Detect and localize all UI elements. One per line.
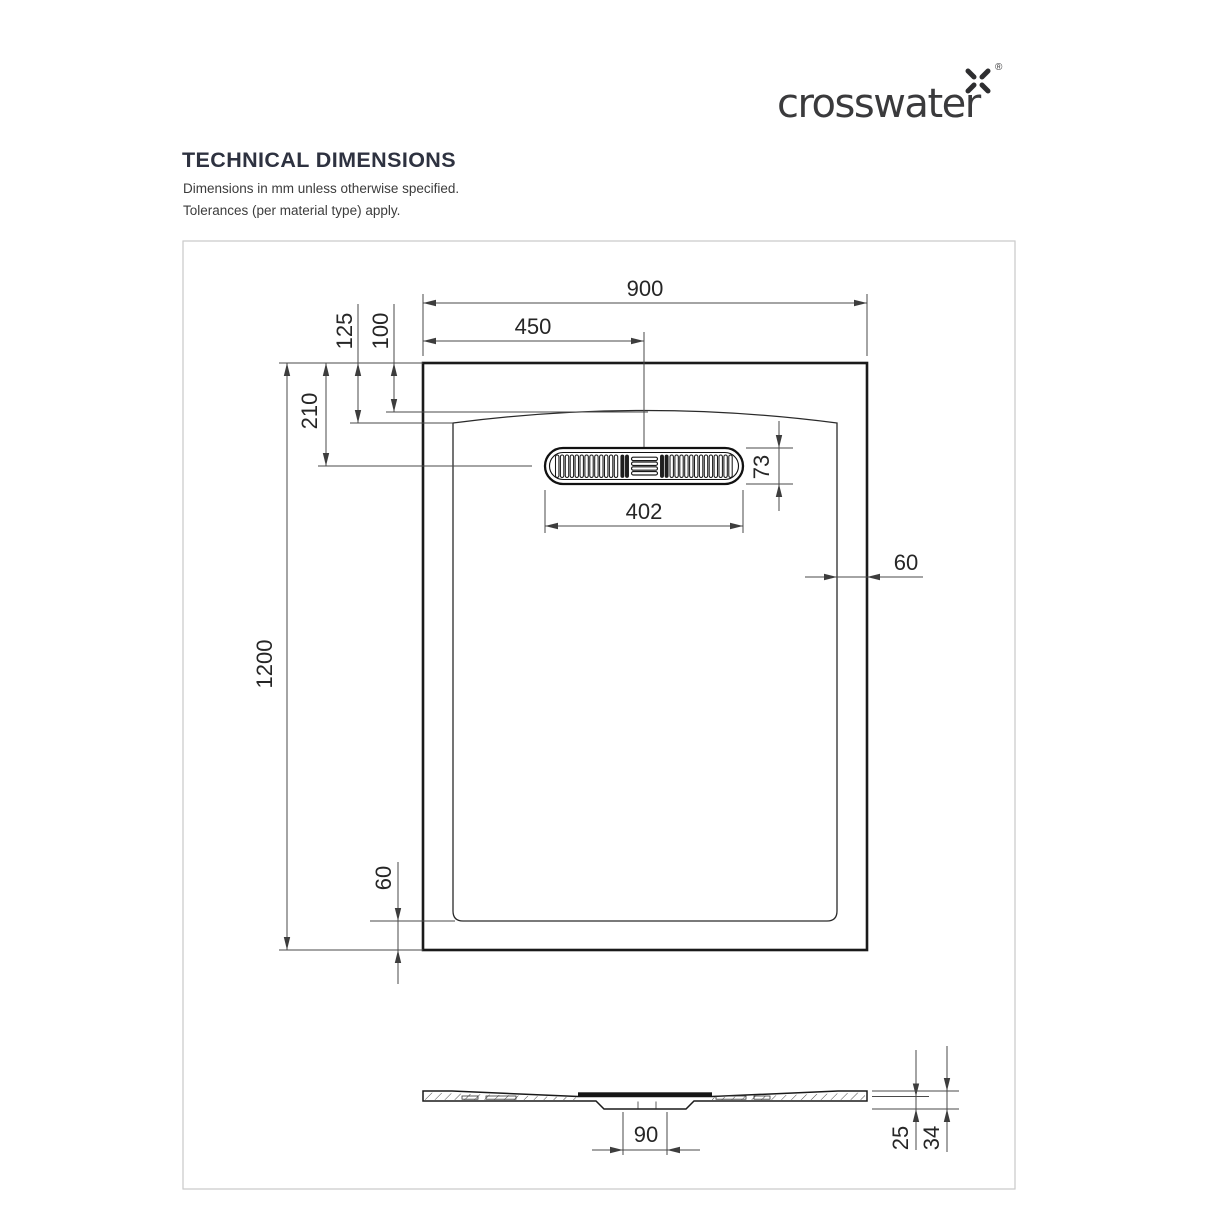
section-view: 90 25 34 <box>423 1046 959 1155</box>
dim-tray-length: 1200 <box>252 363 423 950</box>
dim-waste-width: 90 <box>592 1112 700 1155</box>
dimension-label-402: 402 <box>626 499 663 524</box>
dimension-label-60-bottom: 60 <box>371 866 396 890</box>
dim-rim-to-drain-center: 210 <box>297 363 532 466</box>
dim-tray-width: 900 <box>423 276 867 356</box>
dimension-label-125: 125 <box>332 313 357 350</box>
dimension-label-60-right: 60 <box>894 550 918 575</box>
dim-grille-width: 402 <box>545 490 743 533</box>
dimension-label-90: 90 <box>634 1122 658 1147</box>
dimension-label-210: 210 <box>297 393 322 430</box>
plan-view: 900 450 125 <box>252 276 923 984</box>
section-grille-band <box>578 1092 712 1096</box>
dim-rim-to-arc-apex: 100 <box>368 304 648 412</box>
grille-slot-dark <box>625 455 628 478</box>
drawing-border <box>183 241 1015 1189</box>
dimension-label-450: 450 <box>515 314 552 339</box>
technical-drawing: 900 450 125 <box>0 0 1214 1214</box>
dim-grille-height: 73 <box>746 421 793 511</box>
grille-slot-dark <box>621 455 624 478</box>
dimension-label-34: 34 <box>919 1126 944 1150</box>
drain-grille <box>545 448 743 484</box>
dimension-label-25: 25 <box>888 1126 913 1150</box>
dimension-label-73: 73 <box>749 455 774 479</box>
dimension-label-900: 900 <box>627 276 664 301</box>
dimension-label-1200: 1200 <box>252 640 277 689</box>
grille-slot-dark <box>660 455 663 478</box>
grille-slot-dark <box>665 455 668 478</box>
page: crosswater ® TECHNICAL DIMENSIONS Dimens… <box>0 0 1214 1214</box>
dimension-label-100: 100 <box>368 313 393 350</box>
dim-edge-gap-bottom: 60 <box>370 862 455 984</box>
dim-drain-offset: 450 <box>423 314 644 344</box>
dim-edge-gap-right: 60 <box>805 550 923 580</box>
